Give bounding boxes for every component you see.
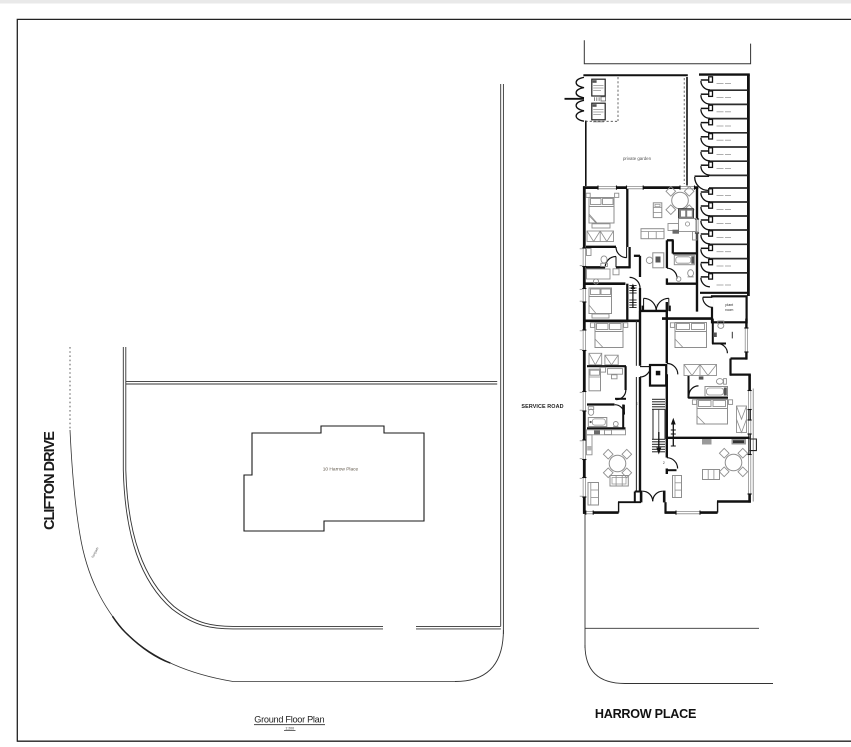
svg-text:2: 2: [663, 461, 665, 465]
svg-text:SERVICE ROAD: SERVICE ROAD: [521, 404, 563, 410]
svg-text:plant: plant: [725, 303, 733, 307]
svg-text:HARROW PLACE: HARROW PLACE: [595, 707, 696, 721]
svg-text:10 Harrow Place: 10 Harrow Place: [323, 467, 359, 473]
svg-text:private garden: private garden: [623, 156, 652, 161]
svg-text:CLIFTON DRIVE: CLIFTON DRIVE: [42, 431, 58, 530]
svg-text:1: 1: [636, 402, 638, 406]
svg-text:1:200: 1:200: [285, 726, 294, 730]
svg-text:room: room: [725, 308, 733, 312]
svg-text:Ground Floor Plan: Ground Floor Plan: [254, 714, 324, 724]
